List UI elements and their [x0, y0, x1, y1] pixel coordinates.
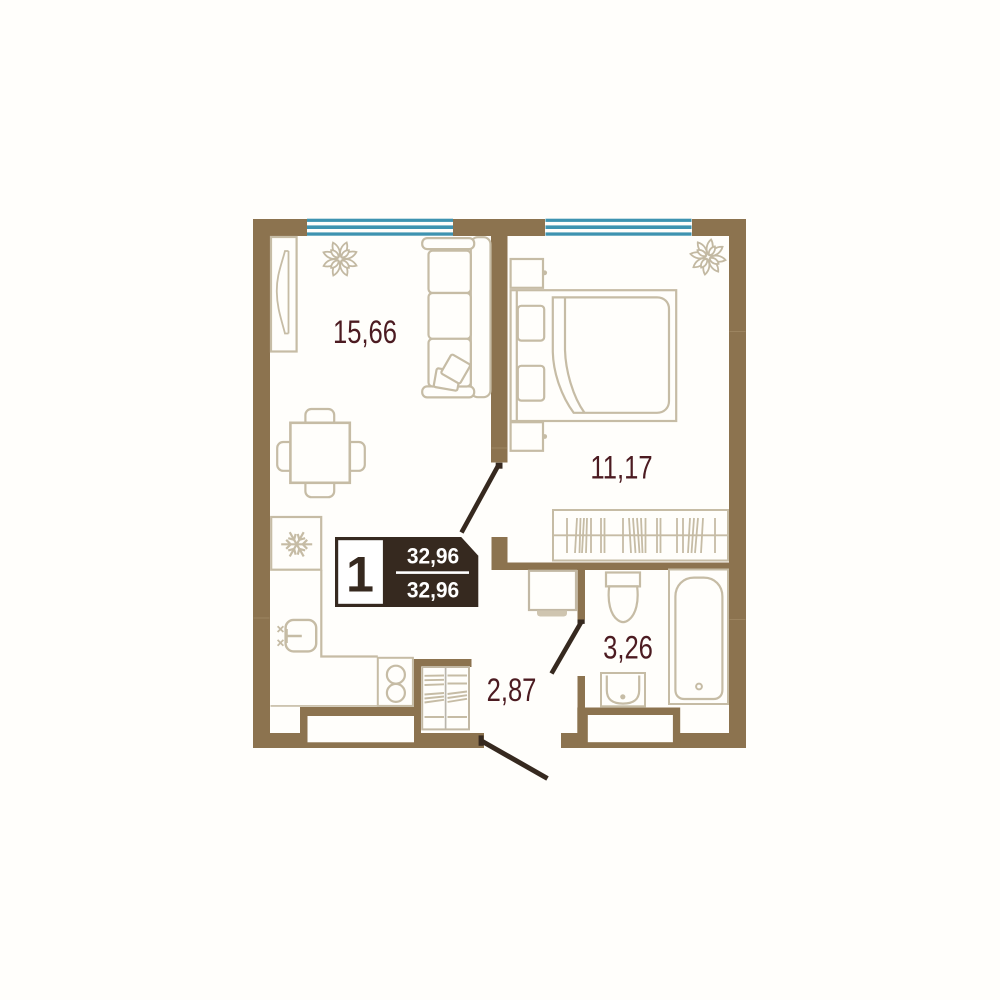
svg-text:2,87: 2,87 [487, 673, 537, 708]
svg-text:1: 1 [346, 547, 374, 603]
svg-text:3,26: 3,26 [603, 631, 653, 666]
svg-text:32,96: 32,96 [407, 577, 459, 603]
svg-text:32,96: 32,96 [407, 543, 459, 569]
svg-text:15,66: 15,66 [333, 315, 397, 350]
svg-text:11,17: 11,17 [590, 451, 652, 486]
